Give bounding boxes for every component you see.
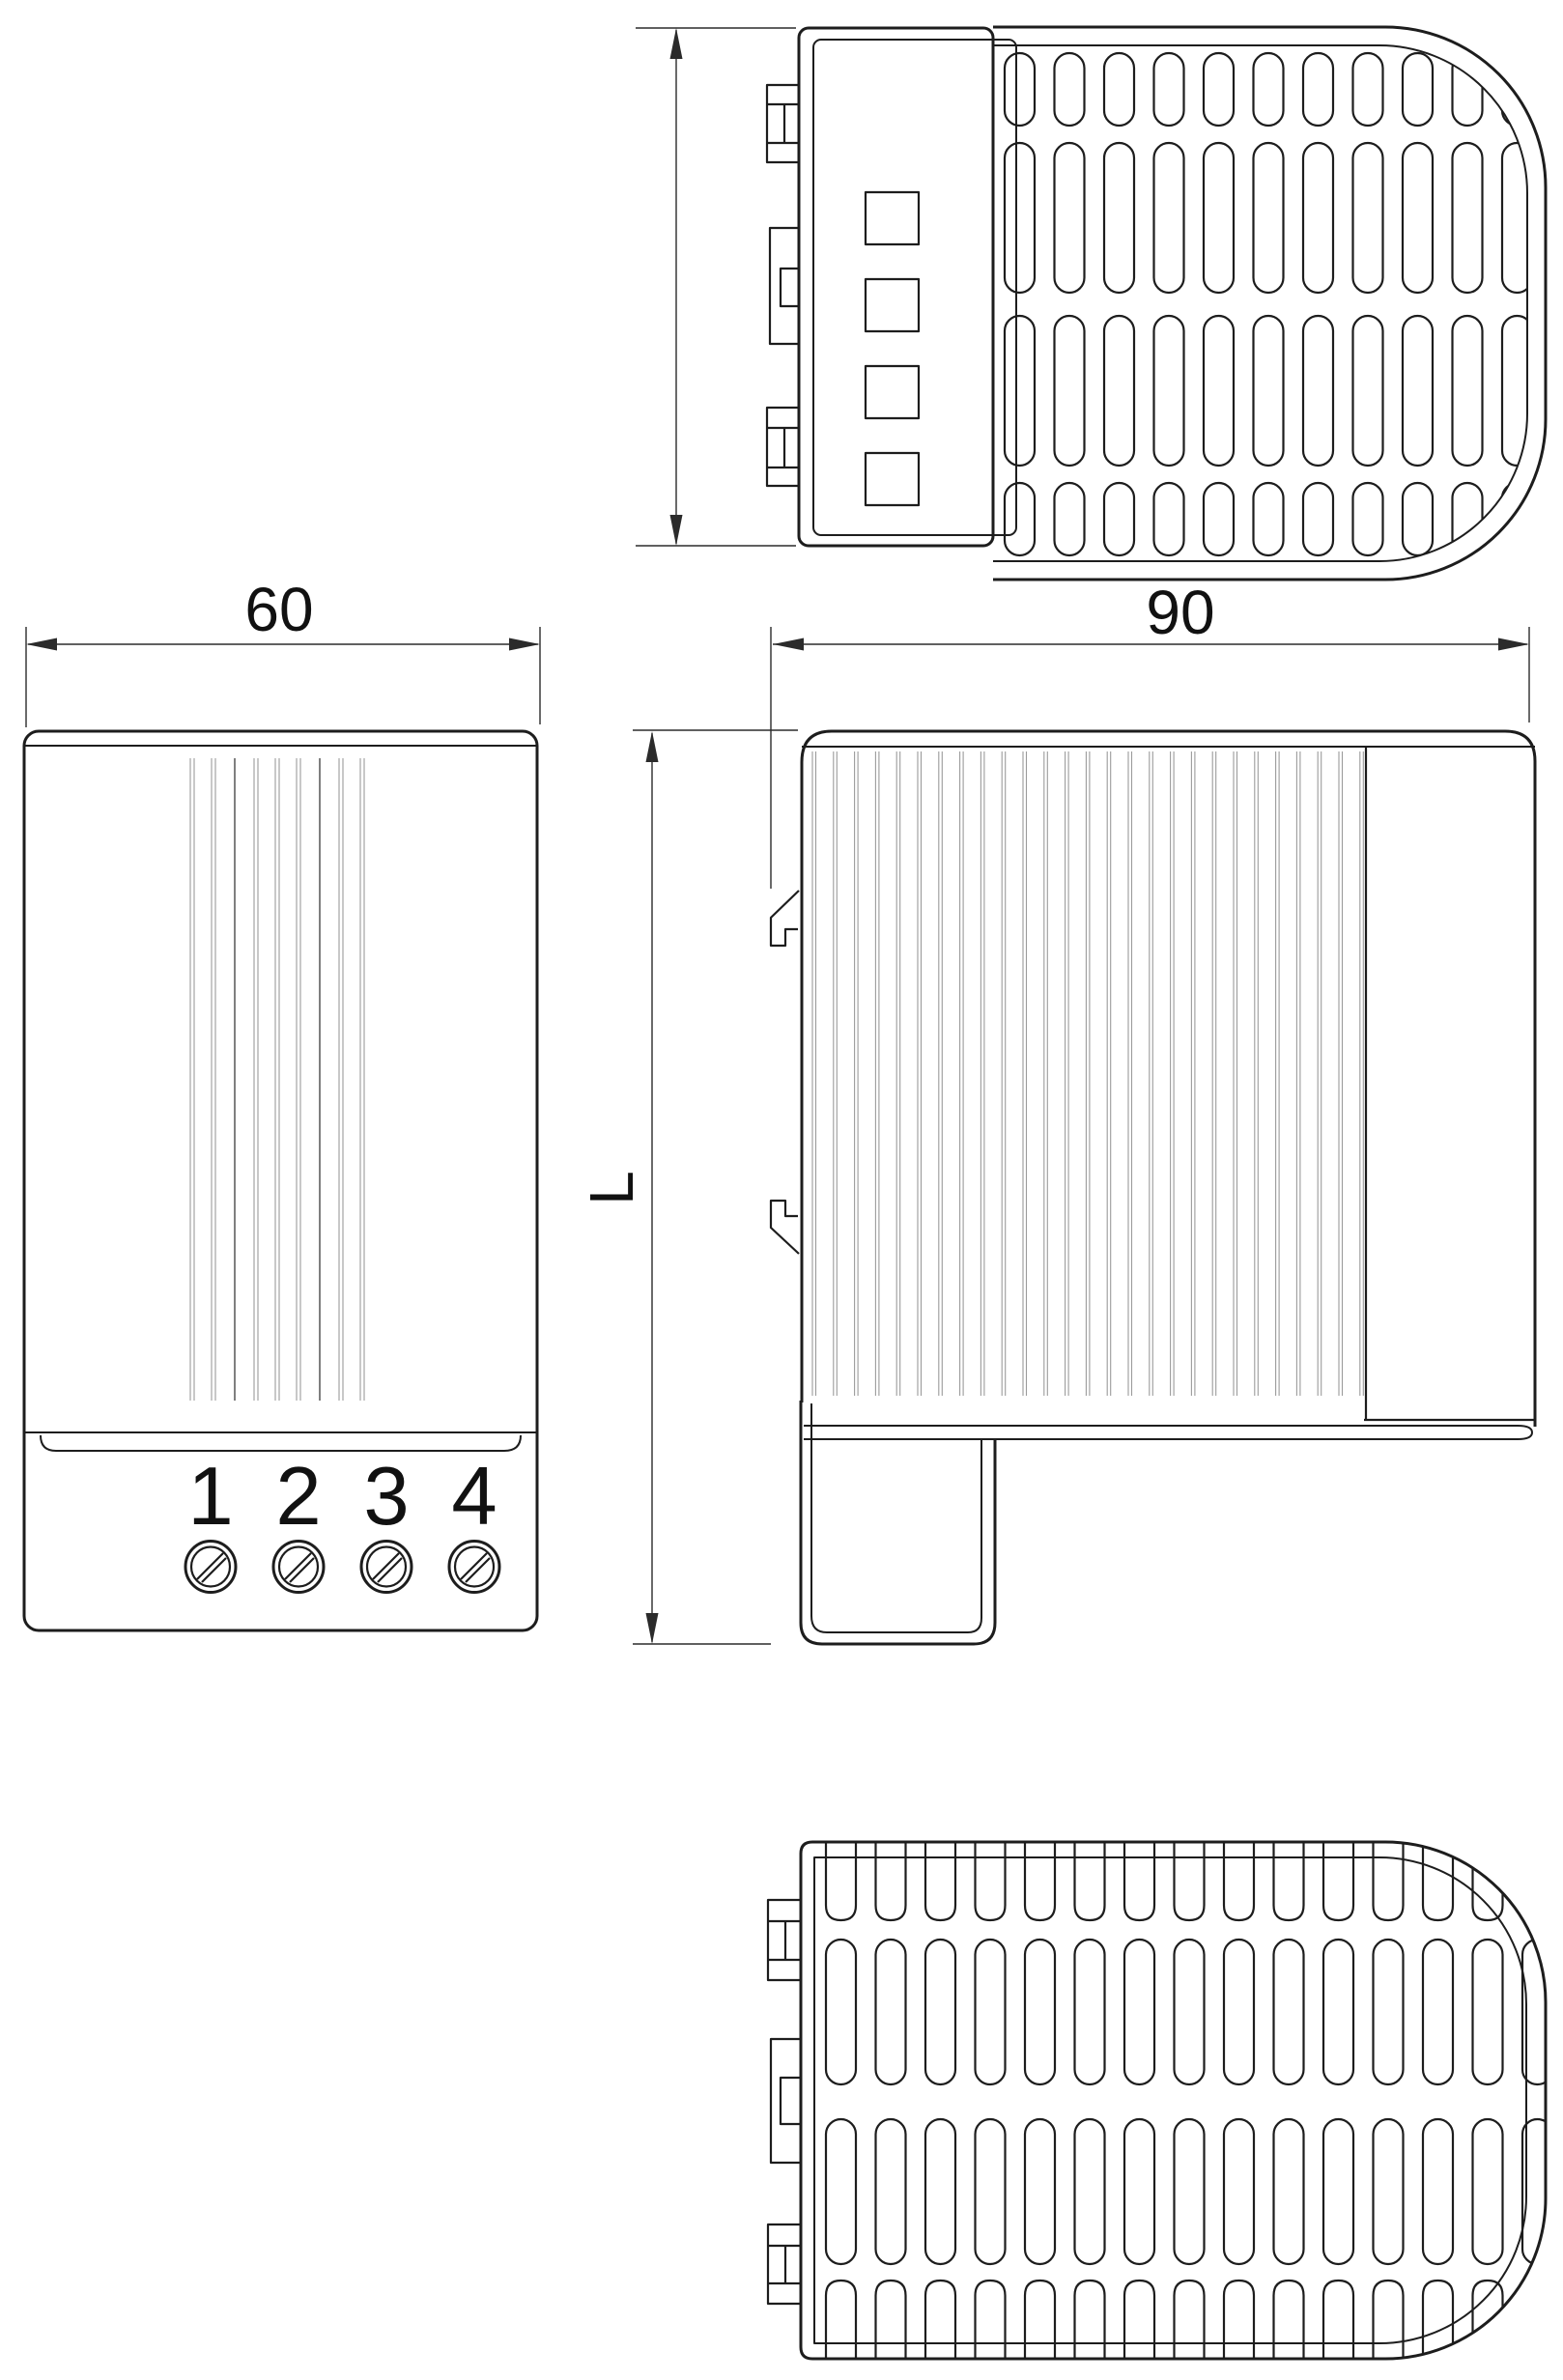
terminal-label: 1 xyxy=(187,1451,233,1543)
terminal-label: 2 xyxy=(275,1451,321,1543)
technical-drawing: 60 1 2 3 4 90 xyxy=(0,0,1563,2380)
drawing-page: 60 1 2 3 4 90 xyxy=(0,0,1563,2380)
side-height-value: L xyxy=(577,1171,646,1205)
terminal-label: 3 xyxy=(363,1451,409,1543)
side-width-value: 90 xyxy=(1146,578,1214,647)
terminal-label: 4 xyxy=(451,1451,497,1543)
front-width-value: 60 xyxy=(244,575,313,644)
